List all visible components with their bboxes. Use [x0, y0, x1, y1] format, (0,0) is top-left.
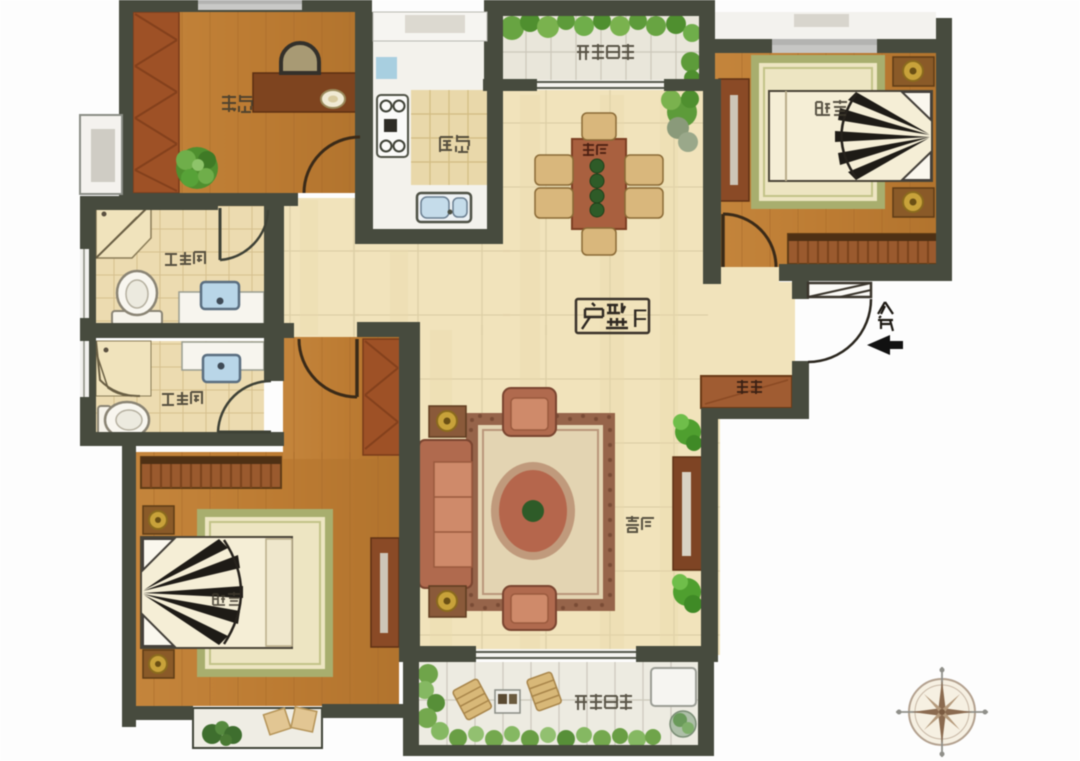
svg-text:F: F: [632, 305, 647, 333]
